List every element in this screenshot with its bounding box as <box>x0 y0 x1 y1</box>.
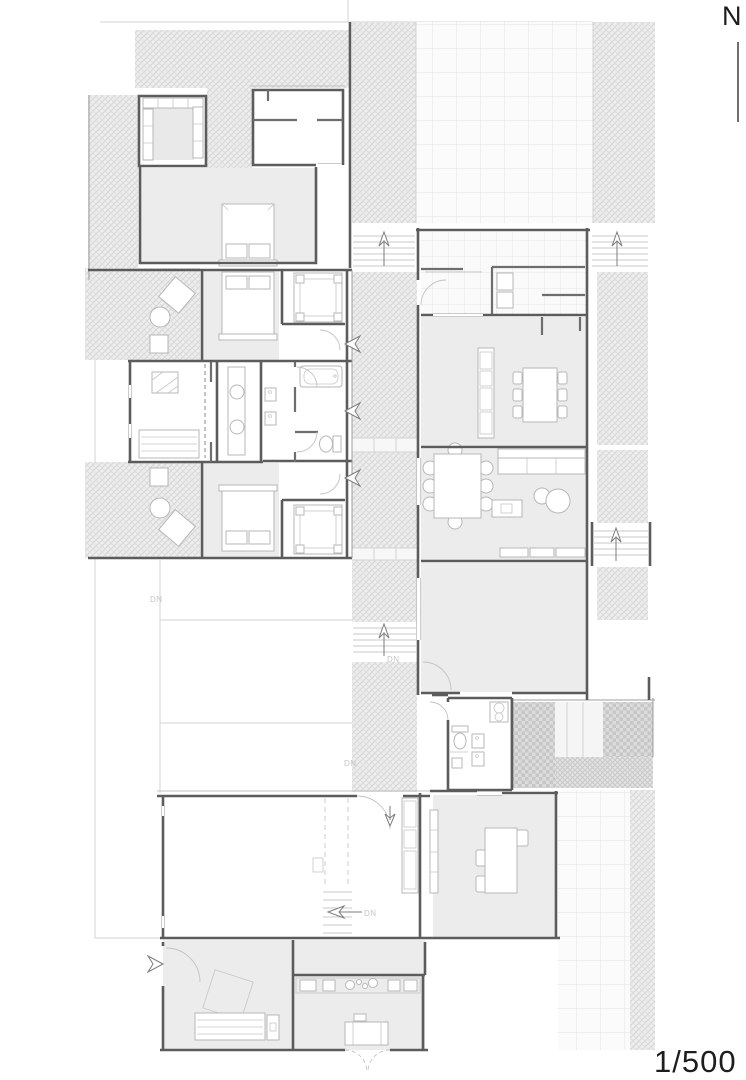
wardrobe-south <box>294 505 342 554</box>
bed-bedroom-north <box>219 272 277 340</box>
entry-closet-east <box>497 273 513 308</box>
garden-paving <box>511 698 655 790</box>
north-indicator: N <box>722 1 742 122</box>
stairs-east <box>592 522 650 566</box>
stairs-mid-down <box>353 622 416 658</box>
dn-label-2: DN <box>387 655 400 664</box>
bathroom-fixtures-west <box>265 366 342 452</box>
stairs-northwest <box>353 230 415 268</box>
north-label: N <box>722 1 742 31</box>
stairs-interior-south <box>313 798 362 933</box>
dn-label-4: DN <box>364 909 377 918</box>
dn-label-3: DN <box>344 759 357 768</box>
bed-bedroom-south <box>219 485 277 551</box>
floor-plan-drawing: DN DN DN DN N 1/500 <box>0 0 746 1080</box>
utility-bath-fixtures <box>450 702 508 768</box>
study-desk-chairs <box>228 367 245 455</box>
dining-table-east <box>513 368 567 422</box>
kitchen-island-east <box>478 348 494 438</box>
wardrobe-north <box>294 273 342 322</box>
dn-label-1: DN <box>150 595 163 604</box>
bed-master-upper <box>219 204 277 266</box>
stairs-northeast <box>592 230 648 268</box>
bedroom-west-furniture <box>139 372 199 458</box>
scale-label: 1/500 <box>654 1044 737 1079</box>
floor-plan-page: DN DN DN DN N 1/500 <box>0 0 746 1080</box>
